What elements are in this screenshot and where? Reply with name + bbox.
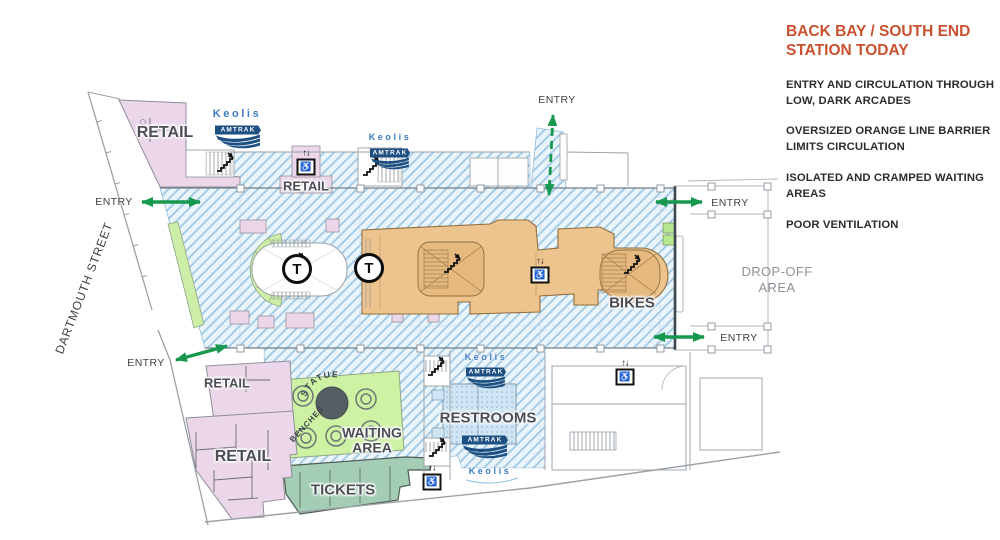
entry-label-west-south: ENTRY: [127, 357, 164, 369]
bullet-waiting-areas: ISOLATED AND CRAMPED WAITING AREAS: [786, 171, 996, 203]
keolis-logo: Keolis: [369, 132, 412, 142]
amtrak-waves-icon: [216, 135, 260, 149]
amtrak-logo: AMTRAK: [370, 149, 410, 170]
keolis-logo: Keolis: [469, 466, 512, 476]
platform-slot: [676, 236, 683, 312]
bullet-orange-barrier: OVERSIZED ORANGE LINE BARRIER LIMITS CIR…: [786, 124, 996, 156]
page-title: BACK BAY / SOUTH END STATION TODAY: [786, 22, 996, 61]
amtrak-logo: AMTRAK: [462, 436, 508, 459]
annotation-panel: BACK BAY / SOUTH END STATION TODAY ENTRY…: [786, 22, 996, 248]
amtrak-wordmark: AMTRAK: [462, 436, 508, 445]
dropoff-line1: DROP-OFF: [741, 264, 812, 280]
entry-label-east-south: ENTRY: [720, 332, 757, 344]
wheelchair-icon: ♿: [297, 159, 316, 176]
wheelchair-icon: ♿: [616, 369, 635, 386]
retail-label-south-big: RETAIL: [215, 448, 272, 466]
amtrak-waves-icon: [467, 377, 505, 389]
dropoff-area-label: DROP-OFF AREA: [741, 264, 812, 297]
elevator-arrows: ↑↓: [537, 257, 544, 266]
bullet-ventilation: POOR VENTILATION: [786, 218, 996, 234]
amtrak-logo: AMTRAK: [466, 368, 506, 389]
dropoff-line2: AREA: [741, 280, 812, 296]
elevator-arrows: ↑↓: [303, 149, 310, 158]
mbta-t-logo: T: [354, 253, 384, 283]
amtrak-waves-icon: [371, 158, 409, 170]
retail-label-south-small: RETAIL: [204, 376, 250, 391]
elevator-arrows: ↑↓: [429, 464, 436, 473]
waiting-area-label: WAITING AREA: [342, 426, 402, 457]
retail-label-topleft: RETAIL: [137, 124, 194, 142]
t-letter: T: [354, 253, 384, 283]
mbta-t-logo: T: [282, 254, 312, 284]
retail-label-mid: RETAIL: [283, 179, 329, 194]
elevator-icon: ↑↓ ♿: [616, 359, 635, 386]
amtrak-logo: AMTRAK: [215, 126, 261, 149]
tickets-label: TICKETS: [311, 482, 375, 499]
amtrak-wordmark: AMTRAK: [370, 149, 410, 158]
elevator-icon: ↑↓ ♿: [531, 257, 550, 284]
amtrak-wordmark: AMTRAK: [466, 368, 506, 377]
elevator-icon: ↑↓ ♿: [423, 464, 442, 491]
title-line2: STATION TODAY: [786, 41, 996, 60]
amtrak-wordmark: AMTRAK: [215, 126, 261, 135]
waiting-line2: AREA: [342, 441, 402, 456]
entry-label-north: ENTRY: [538, 94, 575, 106]
restrooms-label: RESTROOMS: [440, 410, 537, 427]
bullet-arcades: ENTRY AND CIRCULATION THROUGH LOW, DARK …: [786, 78, 996, 110]
slide: STATUE DARTMOUTH STREET ENTRY ENTRY ENTR…: [0, 0, 1000, 540]
elevator-icon: ↑↓ ♿: [297, 149, 316, 176]
amtrak-waves-icon: [463, 445, 507, 459]
title-line1: BACK BAY / SOUTH END: [786, 22, 996, 41]
t-letter: T: [282, 254, 312, 284]
wheelchair-icon: ♿: [423, 474, 442, 491]
bikes-label: BIKES: [609, 295, 655, 312]
entry-label-east-north: ENTRY: [711, 197, 748, 209]
wheelchair-icon: ♿: [531, 267, 550, 284]
keolis-logo: Keolis: [465, 352, 508, 362]
entry-label-west-north: ENTRY: [95, 196, 132, 208]
keolis-logo: Keolis: [213, 108, 262, 120]
elevator-arrows: ↑↓: [622, 359, 629, 368]
